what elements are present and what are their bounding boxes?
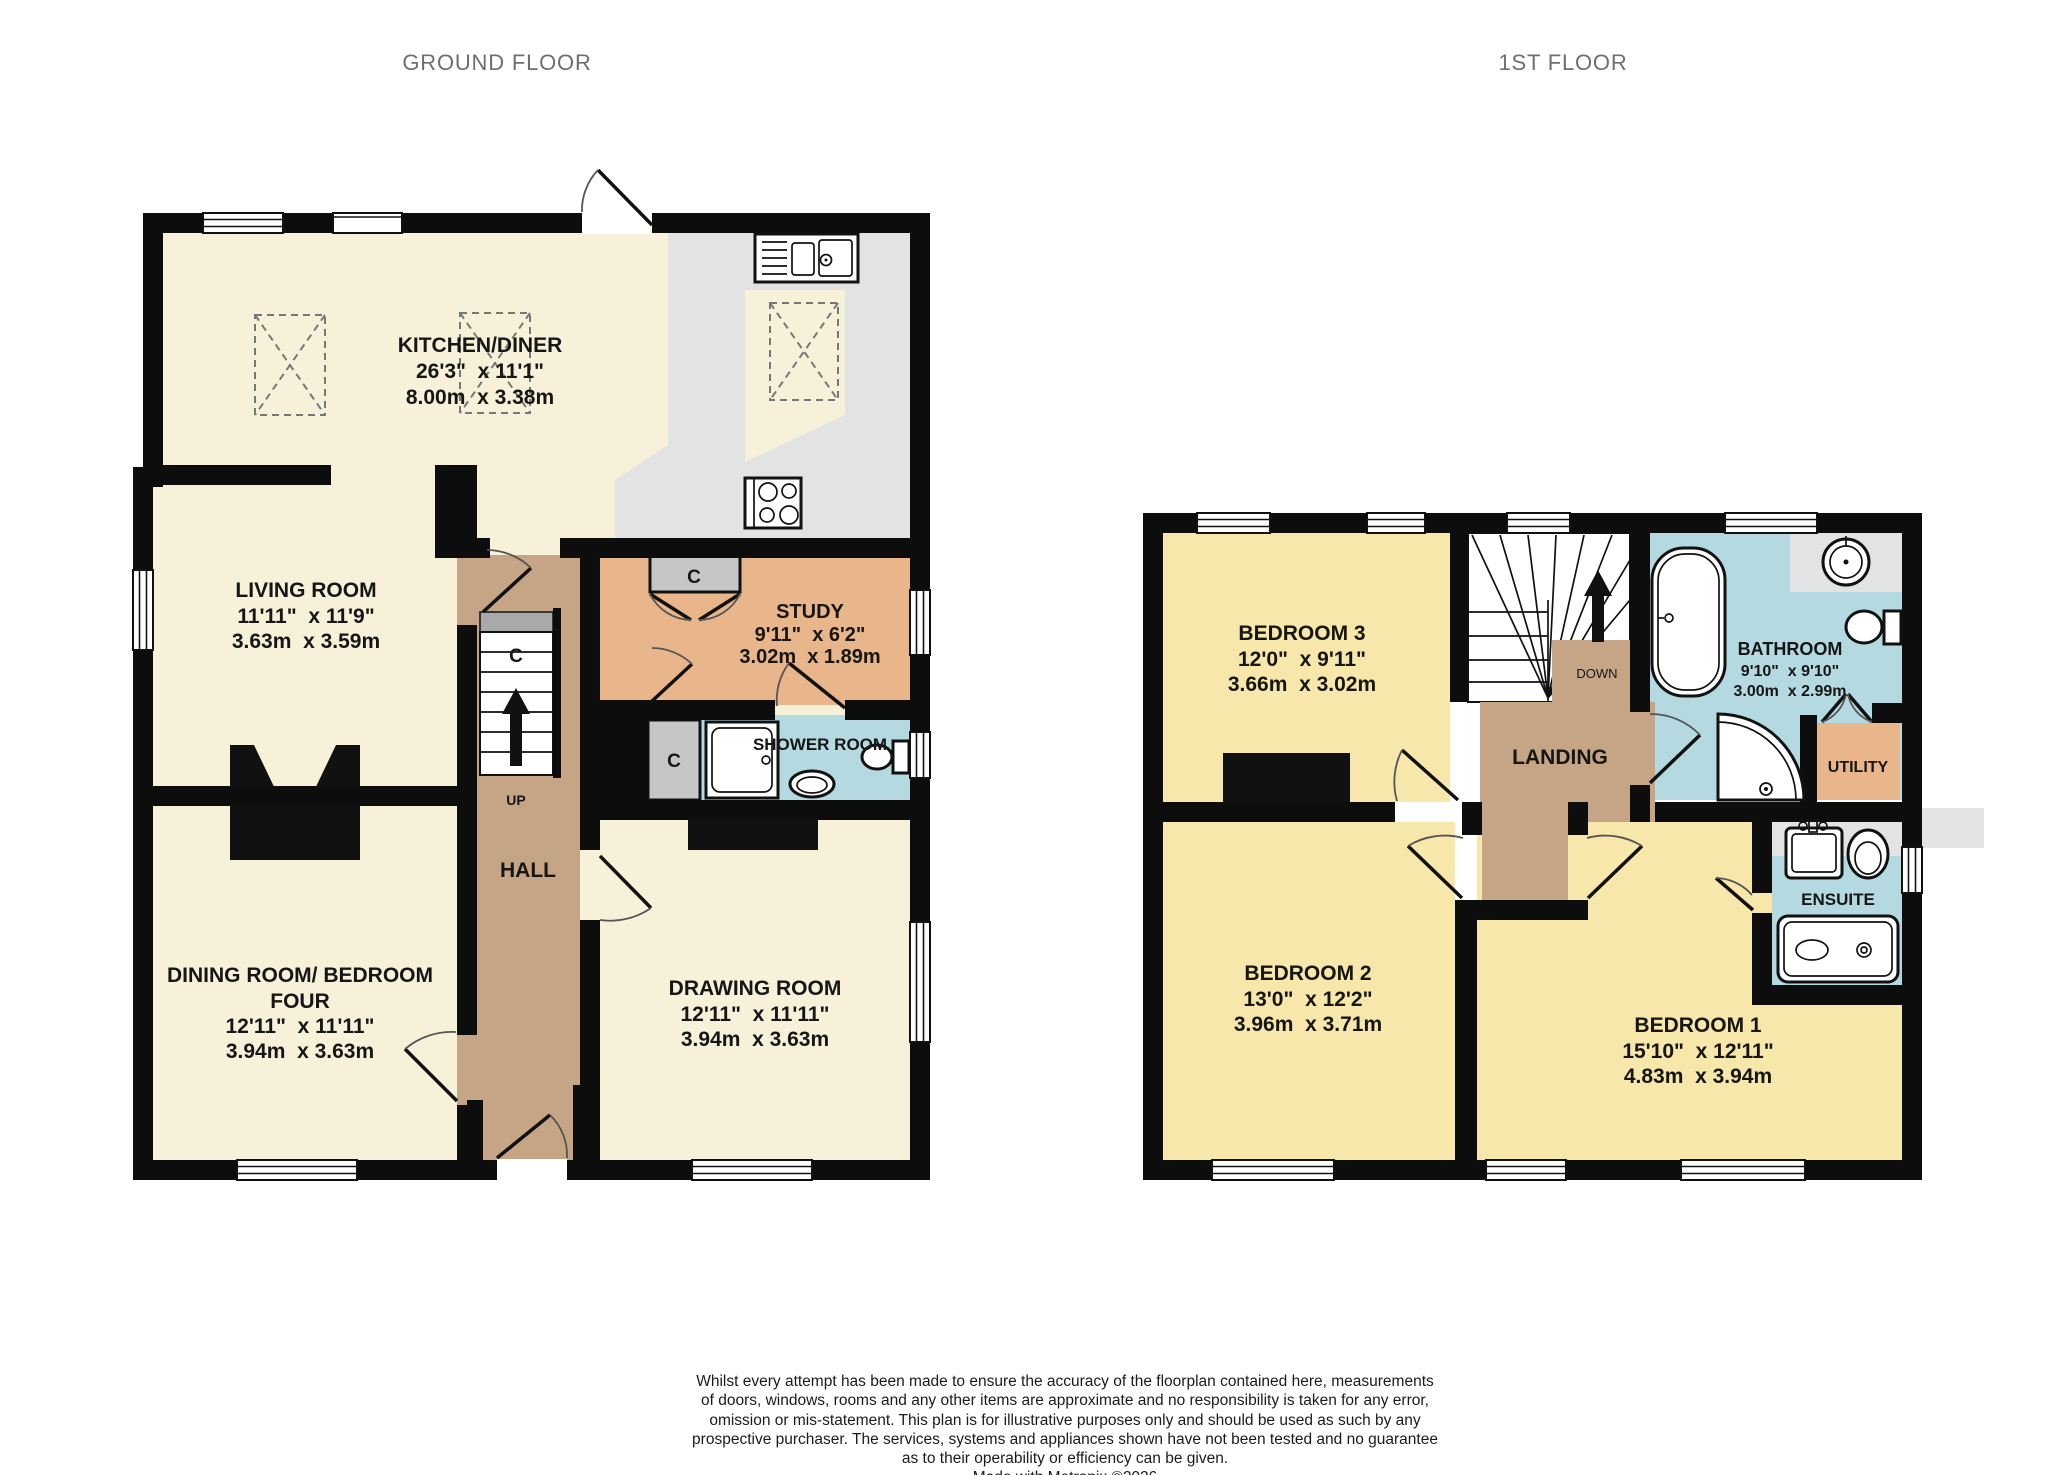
basin-icon (790, 771, 834, 797)
dining-room-imperial: 12'11" x 11'11" (225, 1015, 374, 1038)
disclaimer-line-4: prospective purchaser. The services, sys… (565, 1430, 1565, 1449)
bedroom-2-imperial: 13'0" x 12'2" (1243, 988, 1372, 1011)
room-label-study: STUDY (776, 601, 844, 623)
cupboard-label-3: C (509, 646, 523, 667)
room-label-dining-room-line1: DINING ROOM/ BEDROOM (167, 964, 433, 987)
bedroom-1-metric: 4.83m x 3.94m (1624, 1065, 1772, 1088)
square-basin-icon (1786, 820, 1842, 878)
room-label-kitchen-diner: KITCHEN/DINER (398, 334, 563, 357)
room-label-dining-room-line2: FOUR (270, 990, 330, 1013)
bedroom-3-chimney (1223, 753, 1350, 802)
shower-enclosure-icon (706, 722, 778, 798)
living-room-metric: 3.63m x 3.59m (232, 630, 380, 653)
disclaimer-line-1: Whilst every attempt has been made to en… (565, 1372, 1565, 1391)
bathtub-icon (1652, 548, 1725, 696)
disclaimer-line-3: omission or mis-statement. This plan is … (565, 1411, 1565, 1430)
kitchen-sink-icon (755, 234, 858, 282)
room-label-hall: HALL (500, 859, 556, 882)
bedroom-3-metric: 3.66m x 3.02m (1228, 673, 1376, 696)
kitchen-diner-imperial: 26'3" x 11'1" (416, 360, 544, 383)
hob-icon (745, 478, 801, 528)
bathroom-metric: 3.00m x 2.99m (1734, 683, 1847, 700)
drawing-room-metric: 3.94m x 3.63m (681, 1028, 829, 1051)
room-label-bedroom-1: BEDROOM 1 (1634, 1014, 1762, 1037)
room-label-drawing-room: DRAWING ROOM (669, 977, 842, 1000)
room-label-bathroom: BATHROOM (1738, 639, 1843, 659)
disclaimer-line-2: of doors, windows, rooms and any other i… (565, 1391, 1565, 1410)
disclaimer-line-5: as to their operability or efficiency ca… (565, 1449, 1565, 1468)
cupboard-label-2: C (667, 751, 681, 772)
first-floor-plan: BEDROOM 3 12'0" x 9'11" 3.66m x 3.02m DO… (1143, 513, 1984, 1180)
room-label-ensuite: ENSUITE (1801, 890, 1875, 909)
stairs-down-label: DOWN (1576, 666, 1617, 681)
kitchen-diner-metric: 8.00m x 3.38m (406, 386, 554, 409)
dining-room-metric: 3.94m x 3.63m (226, 1040, 374, 1063)
stairs-up-label: UP (506, 792, 525, 808)
stairs-up (480, 612, 553, 775)
ground-floor-plan: KITCHEN/DINER 26'3" x 11'1" 8.00m x 3.38… (133, 170, 930, 1181)
floorplan-drawing: KITCHEN/DINER 26'3" x 11'1" 8.00m x 3.38… (0, 0, 2048, 1475)
disclaimer: Whilst every attempt has been made to en… (565, 1372, 1565, 1475)
living-room-imperial: 11'11" x 11'9" (237, 605, 374, 628)
drawing-room-imperial: 12'11" x 11'11" (680, 1003, 829, 1026)
bedroom-3-imperial: 12'0" x 9'11" (1238, 648, 1366, 671)
study-imperial: 9'11" x 6'2" (755, 624, 866, 646)
toilet-icon (1846, 611, 1901, 644)
floorplan-page: GROUND FLOOR 1ST FLOOR (0, 0, 2048, 1475)
toilet-icon (1848, 830, 1888, 878)
study-metric: 3.02m x 1.89m (739, 646, 880, 668)
bedroom-2-metric: 3.96m x 3.71m (1234, 1013, 1382, 1036)
room-label-bedroom-2: BEDROOM 2 (1244, 962, 1371, 985)
flat-roof-tab (1922, 808, 1984, 848)
bathroom-imperial: 9'10" x 9'10" (1741, 663, 1839, 680)
bedroom-1-imperial: 15'10" x 12'11" (1622, 1040, 1773, 1063)
shower-tray-icon (1778, 916, 1898, 982)
room-label-shower-room: SHOWER ROOM (753, 735, 887, 754)
room-label-utility: UTILITY (1828, 759, 1889, 776)
room-label-landing: LANDING (1512, 746, 1608, 769)
cupboard-label-1: C (687, 567, 701, 588)
made-with-credit: Made with Metropix ©2026 (565, 1468, 1565, 1475)
drawing-room-fireplace (688, 818, 818, 850)
room-label-bedroom-3: BEDROOM 3 (1238, 622, 1365, 645)
room-label-living-room: LIVING ROOM (235, 579, 376, 602)
